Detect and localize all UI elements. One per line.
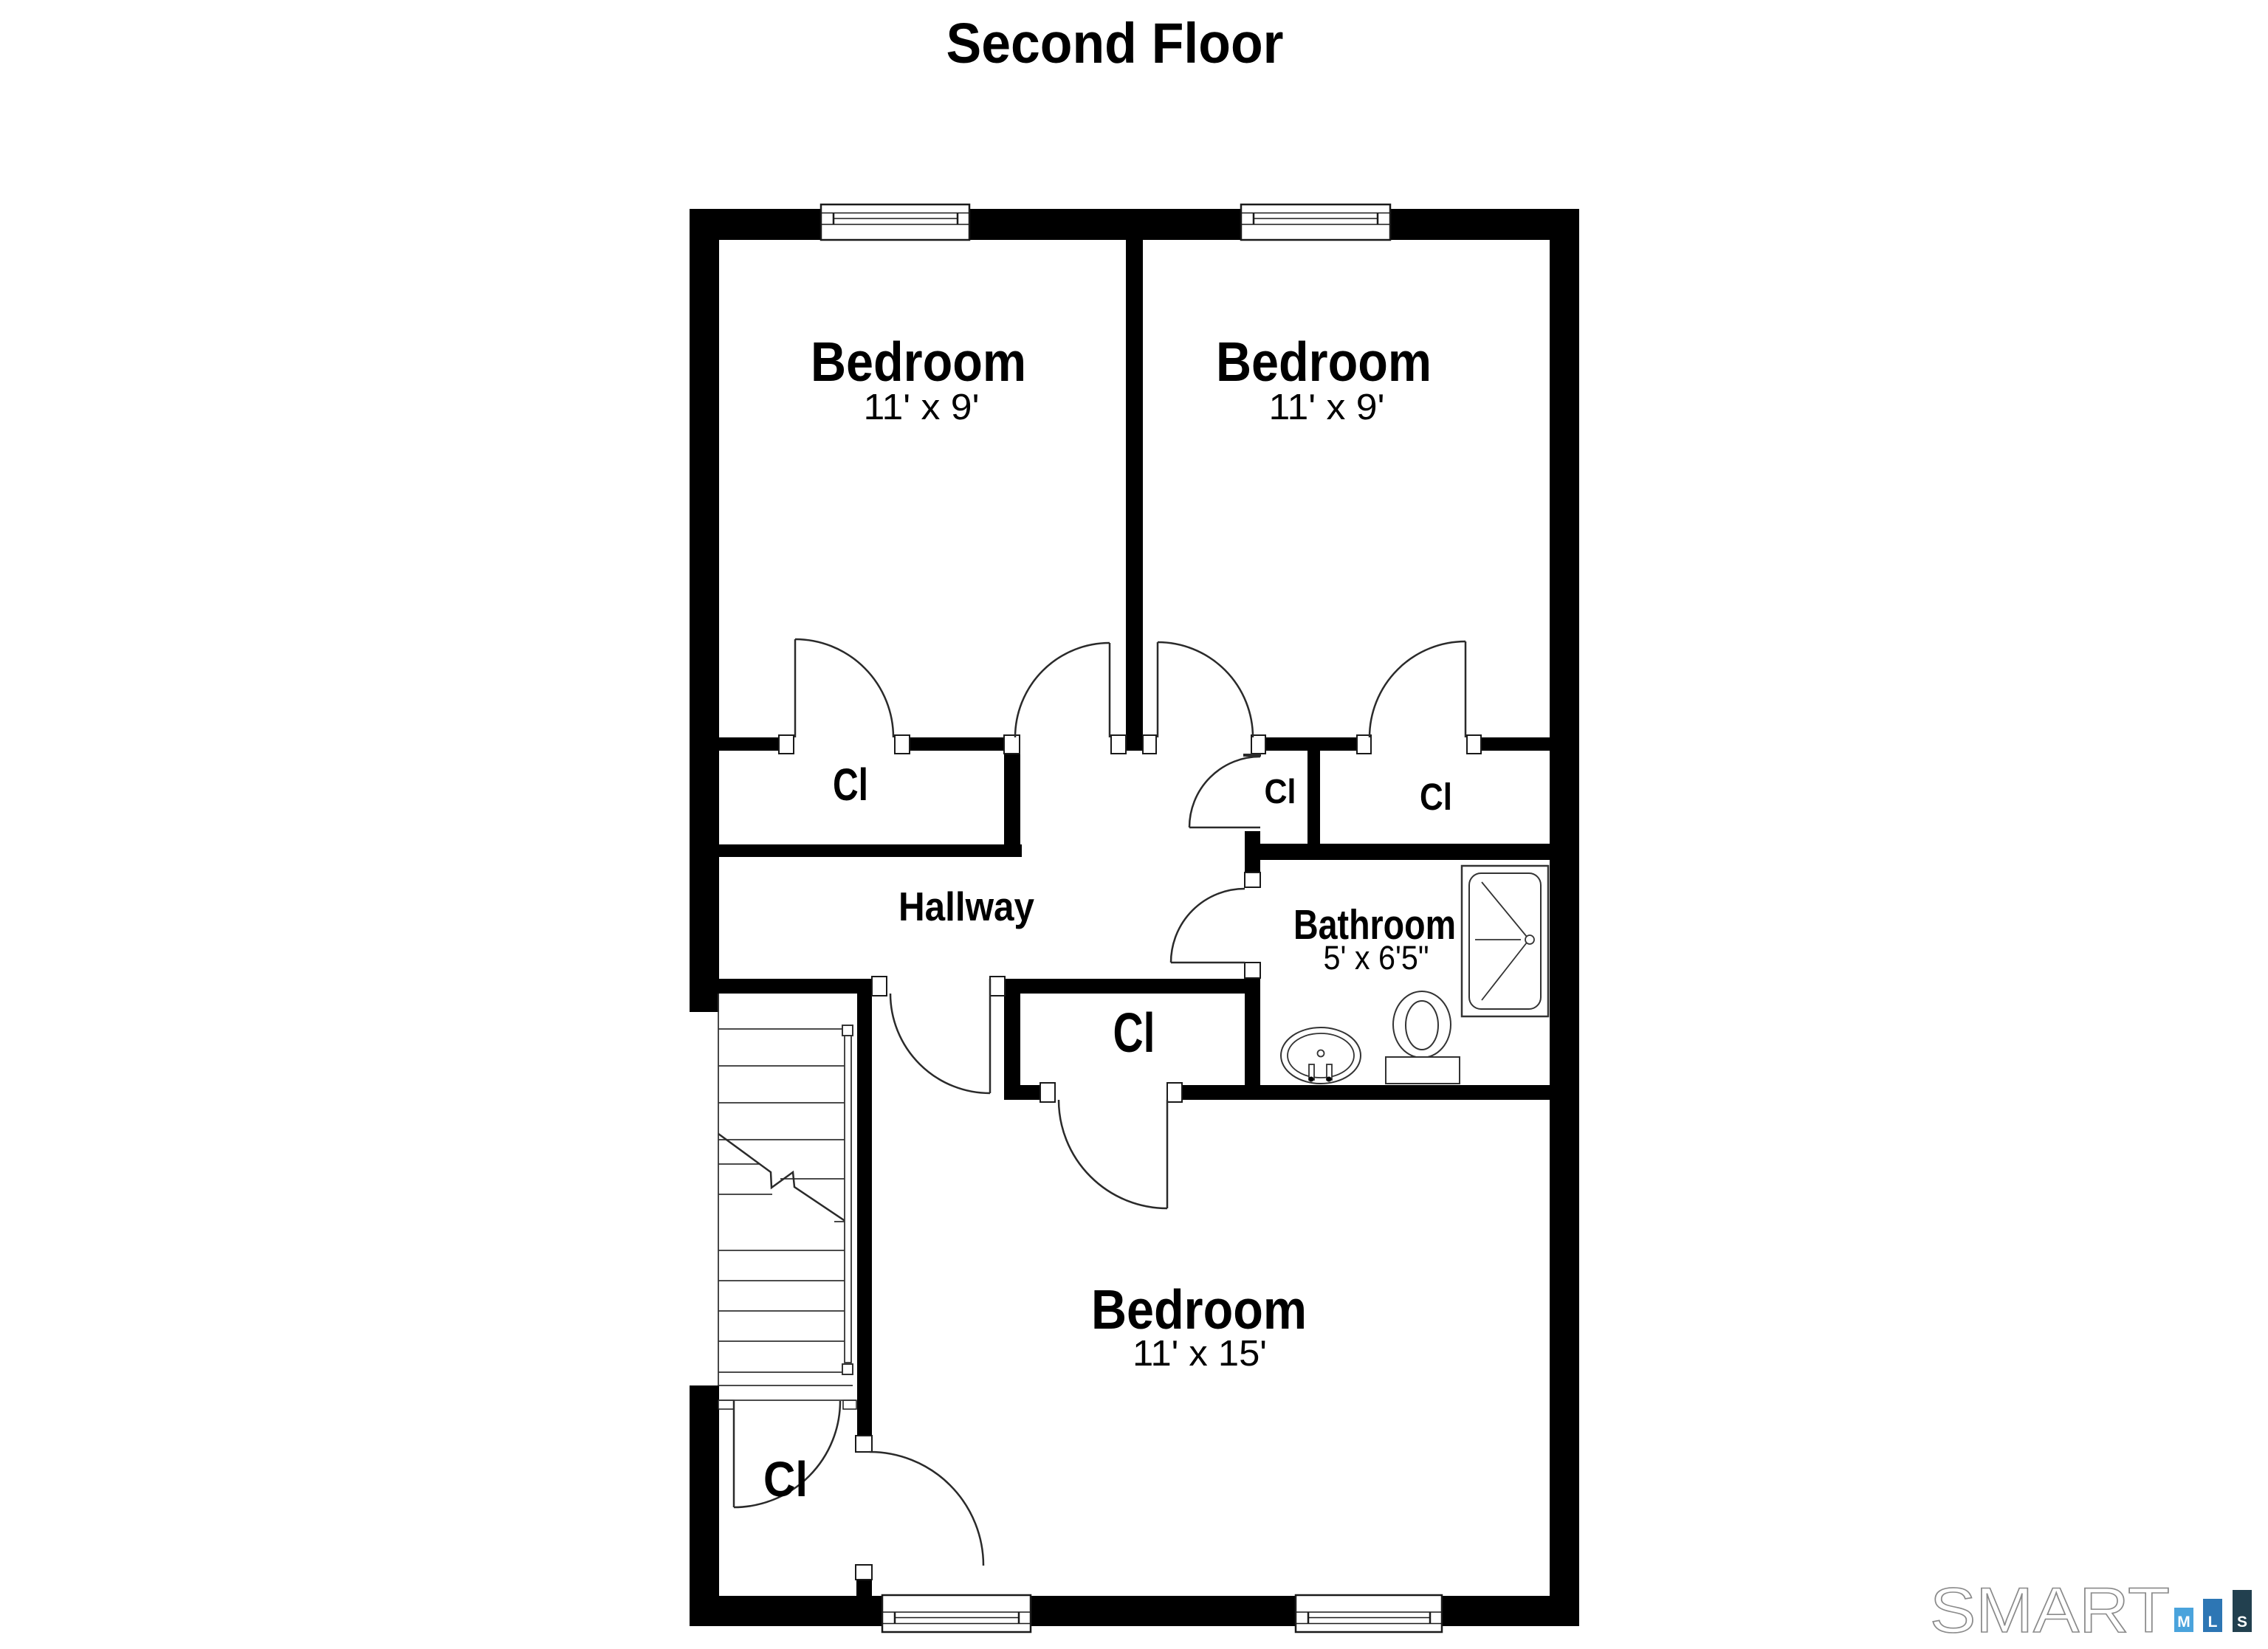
svg-text:Cl: Cl xyxy=(1265,772,1296,810)
svg-text:Cl: Cl xyxy=(1113,1002,1155,1064)
svg-text:Cl: Cl xyxy=(833,760,868,810)
svg-text:S: S xyxy=(2237,1614,2247,1631)
svg-text:11' x 15': 11' x 15' xyxy=(1133,1334,1267,1374)
svg-text:Bedroom: Bedroom xyxy=(1091,1278,1307,1340)
svg-text:Cl: Cl xyxy=(763,1452,808,1507)
svg-text:M: M xyxy=(2177,1614,2190,1631)
svg-text:L: L xyxy=(2208,1614,2218,1631)
svg-text:11' x 9': 11' x 9' xyxy=(1269,388,1385,427)
svg-text:Second Floor: Second Floor xyxy=(946,12,1284,75)
svg-text:Cl: Cl xyxy=(1420,776,1452,818)
svg-text:SMART: SMART xyxy=(1930,1575,2170,1646)
svg-text:11' x 9': 11' x 9' xyxy=(864,388,980,427)
svg-text:Bedroom: Bedroom xyxy=(1216,331,1432,393)
svg-text:5' x 6'5": 5' x 6'5" xyxy=(1324,939,1429,977)
svg-text:Hallway: Hallway xyxy=(898,884,1034,929)
svg-text:Bedroom: Bedroom xyxy=(811,331,1026,393)
